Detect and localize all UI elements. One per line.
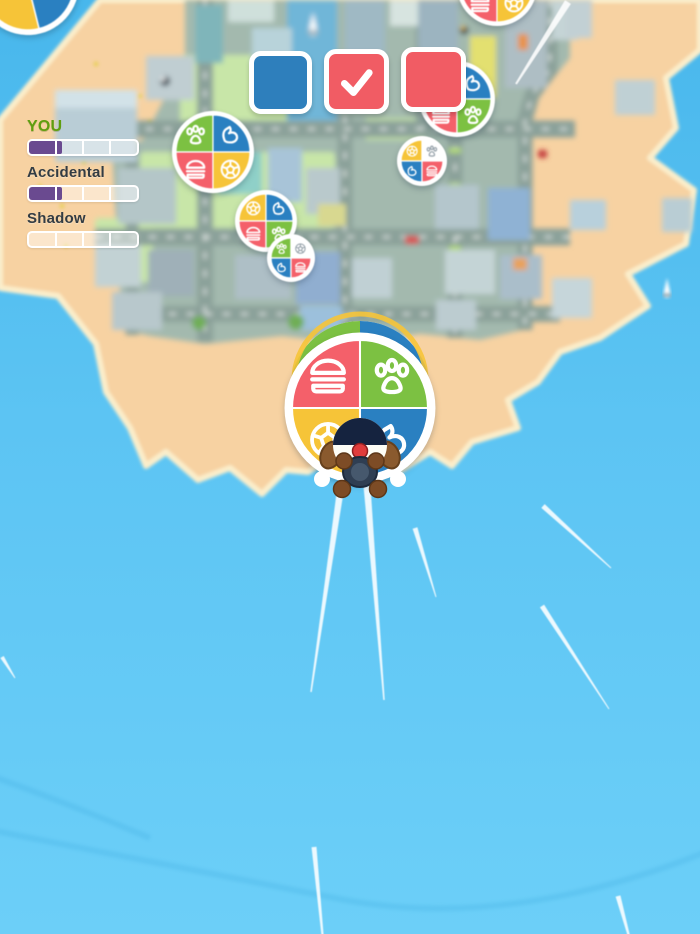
leaderboard-entry: Accidental: [27, 164, 139, 202]
segment-divider: [55, 187, 58, 200]
segment-divider: [55, 141, 58, 154]
speed-line: [541, 504, 611, 568]
dog-paw-right: [368, 453, 384, 469]
speed-line: [310, 485, 344, 692]
dog-paw-left: [336, 453, 352, 469]
segment-divider: [109, 233, 112, 246]
progress-fill: [29, 187, 62, 200]
progress-bar: [27, 231, 139, 248]
segment-divider: [55, 233, 58, 246]
cloud-puff-left: [314, 471, 330, 487]
cloud-puff-right: [390, 471, 406, 487]
progress-bar: [27, 139, 139, 156]
leaderboard-entry: YOU: [27, 118, 139, 156]
speed-line: [515, 0, 571, 84]
player-name: YOU: [27, 118, 139, 136]
segment-divider: [82, 233, 85, 246]
dog-foot-right: [370, 481, 387, 498]
dog-foot-left: [334, 481, 351, 498]
progress-fill: [29, 141, 62, 154]
game-screen[interactable]: YOUAccidentalShadow: [0, 0, 700, 934]
segment-divider: [109, 141, 112, 154]
speed-line: [616, 895, 631, 934]
speed-line: [364, 486, 385, 700]
player-name: Accidental: [27, 164, 139, 182]
speed-line: [312, 847, 324, 934]
segment-divider: [109, 187, 112, 200]
leaderboard-entry: Shadow: [27, 210, 139, 248]
segment-divider: [82, 141, 85, 154]
speed-line: [540, 605, 610, 710]
speed-line: [0, 656, 15, 678]
segment-divider: [82, 187, 85, 200]
harness: [351, 463, 369, 481]
leaderboard: YOUAccidentalShadow: [27, 118, 139, 256]
speed-line: [413, 527, 437, 597]
progress-bar: [27, 185, 139, 202]
player-name: Shadow: [27, 210, 139, 228]
